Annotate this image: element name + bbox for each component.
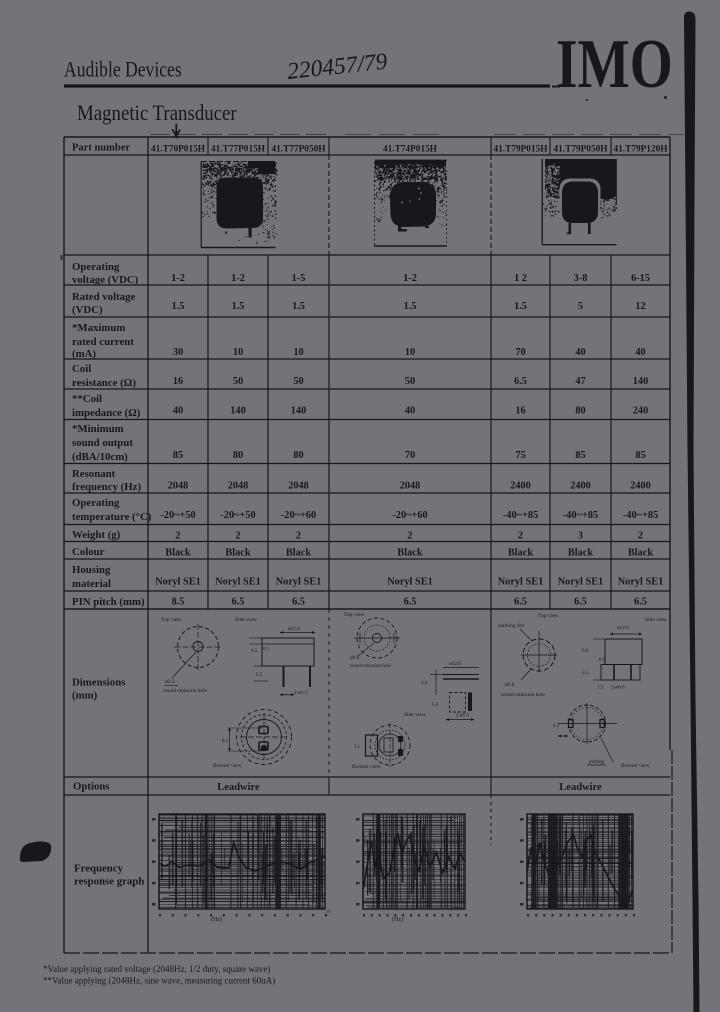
svg-text:Noryl SE1: Noryl SE1 xyxy=(387,577,432,588)
svg-text:5.5: 5.5 xyxy=(256,673,263,678)
svg-text:9.0: 9.0 xyxy=(582,648,589,654)
svg-text:Top view: Top view xyxy=(161,617,182,623)
svg-text:2: 2 xyxy=(235,531,240,542)
svg-text:1 2: 1 2 xyxy=(514,273,527,284)
svg-text:50: 50 xyxy=(405,376,415,387)
svg-text:-40~+85: -40~+85 xyxy=(503,510,538,521)
svg-text:2: 2 xyxy=(296,531,301,542)
svg-text:temperature (°C): temperature (°C) xyxy=(72,511,152,523)
svg-text:16: 16 xyxy=(173,376,183,387)
svg-text:Weight (g): Weight (g) xyxy=(72,529,121,541)
svg-text:2048: 2048 xyxy=(168,481,189,492)
svg-text:2 ø5.5: 2 ø5.5 xyxy=(456,713,470,719)
svg-text:(mA): (mA) xyxy=(72,348,96,360)
svg-text:2400: 2400 xyxy=(570,481,591,492)
svg-text:1-2: 1-2 xyxy=(231,273,245,284)
svg-text:frequency (Hz): frequency (Hz) xyxy=(72,481,141,493)
svg-text:41.T77P050H: 41.T77P050H xyxy=(272,145,327,155)
svg-text:Noryl SE1: Noryl SE1 xyxy=(618,577,663,588)
svg-text:3: 3 xyxy=(578,531,583,542)
svg-text:5.0: 5.0 xyxy=(432,703,439,708)
svg-text:Black: Black xyxy=(628,548,653,559)
svg-text:rated current: rated current xyxy=(72,336,134,348)
svg-text:Bottom view: Bottom view xyxy=(213,763,242,769)
svg-text:12: 12 xyxy=(635,301,645,312)
svg-text:1-2: 1-2 xyxy=(403,273,417,284)
svg-text:6.5: 6.5 xyxy=(404,597,417,608)
svg-text:240: 240 xyxy=(633,406,648,417)
svg-text:ø2.3: ø2.3 xyxy=(165,679,175,685)
svg-text:40: 40 xyxy=(635,347,645,358)
svg-text:41.T77P015H: 41.T77P015H xyxy=(211,145,266,155)
svg-text:Black: Black xyxy=(508,548,533,559)
svg-text:16: 16 xyxy=(515,406,525,417)
svg-text:6.5: 6.5 xyxy=(574,597,587,608)
svg-text:-20~+50: -20~+50 xyxy=(160,510,195,521)
svg-text:Magnetic Transducer: Magnetic Transducer xyxy=(77,99,237,125)
svg-text:Noryl SE1: Noryl SE1 xyxy=(558,577,603,588)
svg-text:6.5: 6.5 xyxy=(514,597,527,608)
svg-text:Black: Black xyxy=(165,548,190,559)
svg-text:Side view: Side view xyxy=(645,617,667,623)
svg-text:6.5: 6.5 xyxy=(251,649,258,654)
svg-text:6-15: 6-15 xyxy=(631,273,650,284)
svg-text:60: 60 xyxy=(455,904,459,909)
svg-text:75: 75 xyxy=(515,450,525,461)
svg-text:Noryl SE1: Noryl SE1 xyxy=(276,577,321,588)
svg-text:Dimensions: Dimensions xyxy=(72,677,125,689)
svg-text:10: 10 xyxy=(233,347,243,358)
svg-text:-40~+85: -40~+85 xyxy=(563,510,598,521)
svg-text:85: 85 xyxy=(575,450,585,461)
svg-text:Black: Black xyxy=(397,548,422,559)
svg-text:1.5: 1.5 xyxy=(292,301,305,312)
svg-text:3-8: 3-8 xyxy=(574,273,588,284)
svg-text:(Hz): (Hz) xyxy=(392,916,403,923)
svg-text:-20~+60: -20~+60 xyxy=(281,510,316,521)
svg-text:(mm): (mm) xyxy=(72,690,98,702)
svg-text:50: 50 xyxy=(293,376,303,387)
svg-text:ø12.0: ø12.0 xyxy=(617,625,629,631)
svg-text:Bottom view: Bottom view xyxy=(621,763,650,769)
svg-text:*Maximum: *Maximum xyxy=(72,322,125,334)
svg-text:-20~+60: -20~+60 xyxy=(392,510,427,521)
svg-text:IMO: IMO xyxy=(556,25,673,103)
svg-text:1.5: 1.5 xyxy=(597,685,604,691)
svg-text:Side view: Side view xyxy=(404,712,426,718)
svg-text:Leadwire: Leadwire xyxy=(217,782,260,793)
svg-text:Colour: Colour xyxy=(72,546,105,558)
svg-text:ø0.8: ø0.8 xyxy=(350,655,360,661)
svg-text:response graph: response graph xyxy=(74,876,144,888)
svg-text:2: 2 xyxy=(175,531,180,542)
svg-text:2: 2 xyxy=(407,531,412,542)
svg-text:41.T70P015H: 41.T70P015H xyxy=(151,145,206,155)
svg-text:*Minimum: *Minimum xyxy=(72,423,124,435)
svg-text:sound emission hole: sound emission hole xyxy=(501,692,546,698)
svg-text:PIN pitch (mm): PIN pitch (mm) xyxy=(72,596,145,608)
svg-text:30: 30 xyxy=(173,347,183,358)
svg-text:2400: 2400 xyxy=(510,481,531,492)
svg-text:40: 40 xyxy=(405,406,415,417)
svg-text:Noryl SE1: Noryl SE1 xyxy=(155,577,200,588)
svg-text:5.5: 5.5 xyxy=(582,670,589,676)
svg-text:5: 5 xyxy=(578,301,583,312)
svg-text:1-2: 1-2 xyxy=(171,273,185,284)
svg-text:-20~+50: -20~+50 xyxy=(220,510,255,521)
svg-text:10: 10 xyxy=(326,909,331,914)
svg-text:Black: Black xyxy=(286,548,311,559)
svg-text:Noryl SE1: Noryl SE1 xyxy=(498,577,543,588)
svg-text:41.T79P120H: 41.T79P120H xyxy=(614,145,669,155)
svg-text:2048: 2048 xyxy=(288,481,309,492)
svg-text:140: 140 xyxy=(291,406,306,417)
svg-text:Black: Black xyxy=(568,548,593,559)
svg-text:Resonant: Resonant xyxy=(72,468,116,480)
svg-text:Operating: Operating xyxy=(72,261,120,273)
svg-text:*Value applying rated voltage: *Value applying rated voltage (2048Hz, 1… xyxy=(43,964,270,974)
svg-text:(dBA/10cm): (dBA/10cm) xyxy=(72,451,128,463)
svg-text:Coil: Coil xyxy=(72,363,91,375)
svg-text:Noryl SE1: Noryl SE1 xyxy=(215,577,260,588)
svg-text:50: 50 xyxy=(233,376,243,387)
svg-text:2048: 2048 xyxy=(228,481,249,492)
svg-text:0.5: 0.5 xyxy=(263,646,269,651)
svg-text:47: 47 xyxy=(575,376,585,387)
svg-text:85: 85 xyxy=(173,450,183,461)
svg-text:70: 70 xyxy=(405,450,415,461)
svg-text:voltage (VDC): voltage (VDC) xyxy=(72,274,139,286)
svg-text:resistance (Ω): resistance (Ω) xyxy=(72,377,136,389)
svg-text:80: 80 xyxy=(293,450,303,461)
svg-text:140: 140 xyxy=(230,406,245,417)
svg-text:··: ·· xyxy=(634,903,637,908)
svg-text:sound emission hole: sound emission hole xyxy=(163,688,208,694)
svg-text:3.4: 3.4 xyxy=(421,681,428,686)
svg-text:41.T79P050H: 41.T79P050H xyxy=(554,145,609,155)
svg-text:8.5: 8.5 xyxy=(222,739,229,744)
svg-text:Housing: Housing xyxy=(72,564,111,576)
svg-text:Frequency: Frequency xyxy=(74,863,124,875)
svg-text:ø12.0: ø12.0 xyxy=(449,661,461,667)
svg-text:41.T79P015H: 41.T79P015H xyxy=(494,145,549,155)
svg-text:Operating: Operating xyxy=(72,497,120,509)
svg-text:2.1: 2.1 xyxy=(354,745,361,750)
svg-text:**Coil: **Coil xyxy=(72,393,102,405)
svg-text:2-ø0.6: 2-ø0.6 xyxy=(611,685,625,691)
svg-text:Audible Devices: Audible Devices xyxy=(64,58,182,82)
svg-text:2-ø1.5: 2-ø1.5 xyxy=(294,690,308,696)
svg-text:4.1: 4.1 xyxy=(553,724,560,729)
svg-text:Side view: Side view xyxy=(235,617,257,623)
svg-text:Options: Options xyxy=(73,781,110,793)
svg-text:1.5: 1.5 xyxy=(172,301,185,312)
svg-text:ø12.0: ø12.0 xyxy=(288,626,300,632)
svg-text:6.5: 6.5 xyxy=(292,597,305,608)
svg-text:6.5: 6.5 xyxy=(514,376,527,387)
svg-text:2: 2 xyxy=(518,531,523,542)
svg-text:80: 80 xyxy=(575,406,585,417)
svg-text:Rated voltage: Rated voltage xyxy=(72,291,135,303)
svg-text:Top view: Top view xyxy=(538,613,559,619)
svg-text:Leadwire: Leadwire xyxy=(559,782,602,793)
svg-text:1.5: 1.5 xyxy=(404,301,417,312)
svg-text:marking slot: marking slot xyxy=(498,623,525,629)
svg-text:1-5: 1-5 xyxy=(292,273,306,284)
svg-text:**Value applying (2048Hz, sine: **Value applying (2048Hz, sine wave, mea… xyxy=(43,976,275,986)
svg-text:8.5: 8.5 xyxy=(172,597,185,608)
svg-text:40: 40 xyxy=(575,347,585,358)
svg-text:140: 140 xyxy=(633,376,648,387)
svg-text:85: 85 xyxy=(635,450,645,461)
svg-text:2048: 2048 xyxy=(400,481,421,492)
svg-text:potting: potting xyxy=(589,759,604,765)
svg-text:2400: 2400 xyxy=(630,481,651,492)
svg-text:sound output: sound output xyxy=(72,437,133,449)
svg-text:-40~+85: -40~+85 xyxy=(623,510,658,521)
svg-text:1.5: 1.5 xyxy=(514,301,527,312)
svg-text:material: material xyxy=(72,578,111,590)
svg-text:(Hz): (Hz) xyxy=(211,916,222,923)
svg-text:70: 70 xyxy=(515,347,525,358)
svg-text:Top view: Top view xyxy=(344,612,365,618)
svg-text:Black: Black xyxy=(225,548,250,559)
svg-text:80: 80 xyxy=(233,450,243,461)
svg-text:6.5: 6.5 xyxy=(232,597,245,608)
svg-text:1.5: 1.5 xyxy=(232,301,245,312)
svg-text:0.6: 0.6 xyxy=(599,658,606,663)
svg-text:2: 2 xyxy=(638,531,643,542)
svg-text:41.T74P015H: 41.T74P015H xyxy=(383,145,438,155)
svg-text:10: 10 xyxy=(405,347,415,358)
svg-text:ø0.8: ø0.8 xyxy=(505,682,515,688)
svg-text:6.5: 6.5 xyxy=(634,597,647,608)
svg-text:Bottom view: Bottom view xyxy=(352,764,381,770)
svg-text:40: 40 xyxy=(173,406,183,417)
svg-text:sound emission hole: sound emission hole xyxy=(350,664,392,669)
svg-text:(VDC): (VDC) xyxy=(72,304,103,316)
svg-text:10: 10 xyxy=(293,347,303,358)
svg-text:Part number: Part number xyxy=(72,143,130,154)
svg-text:impedance (Ω): impedance (Ω) xyxy=(72,407,141,419)
